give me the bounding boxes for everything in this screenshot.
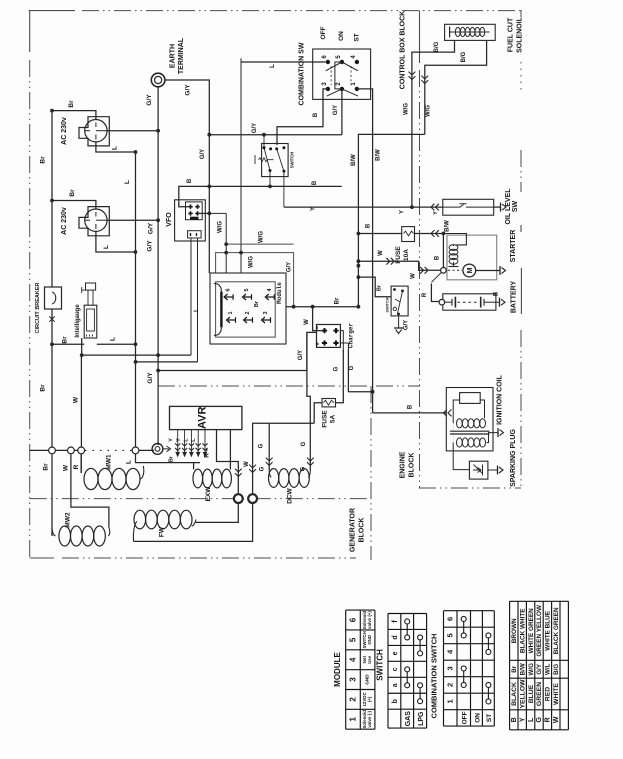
svg-text:6: 6 [349,617,358,622]
svg-text:G/Y: G/Y [404,320,410,330]
svg-text:MW1: MW1 [106,454,113,470]
svg-text:W/L: W/L [545,663,552,675]
svg-text:c: c [392,667,399,671]
svg-text:5: 5 [349,637,358,642]
svg-text:BLOCK: BLOCK [359,518,366,543]
svg-text:5: 5 [446,633,455,637]
svg-text:B/G: B/G [553,664,560,675]
svg-text:+: + [316,342,322,346]
svg-text:e: e [392,651,399,655]
svg-text:SWITCH: SWITCH [376,649,385,681]
svg-text:SWITCH: SWITCH [290,152,295,169]
svg-text:G/Y: G/Y [252,123,258,133]
svg-text:COMBINATION SWITCH: COMBINATION SWITCH [430,634,439,719]
svg-text:G: G [349,365,355,370]
svg-text:Br: Br [511,665,518,672]
svg-text:G: G [259,443,265,448]
svg-text:AC 230v: AC 230v [61,207,68,235]
svg-text:G/Y: G/Y [146,240,153,252]
svg-text:GENERATOR: GENERATOR [350,508,357,552]
svg-text:Module: Module [276,282,283,304]
svg-text:CIRCUIT BREAKER: CIRCUIT BREAKER [35,282,41,333]
svg-text:G/Y: G/Y [298,350,304,360]
svg-text:L: L [528,717,535,722]
svg-text:valve (-): valve (-) [367,710,372,727]
svg-text:Use: Use [367,655,372,664]
svg-text:d: d [392,635,399,639]
svg-text:ST: ST [486,714,493,722]
svg-text:R: R [73,464,80,469]
svg-text:B/W: B/W [351,154,357,166]
svg-text:GND: GND [364,674,369,685]
svg-text:R +: R + [205,448,211,458]
svg-text:b: b [392,699,399,703]
svg-text:EARTH: EARTH [170,44,177,68]
svg-text:YELLOW: YELLOW [519,679,526,709]
svg-text:W/G: W/G [403,103,409,115]
svg-text:MW2: MW2 [65,512,72,528]
svg-text:G: G [334,366,340,371]
svg-text:WHITE: WHITE [553,683,560,705]
svg-text:L: L [110,337,117,341]
svg-text:Intelligauge: Intelligauge [75,304,81,338]
svg-text:(+): (+) [367,696,372,702]
svg-text:−: − [316,326,322,330]
svg-text:COMBINATION SW: COMBINATION SW [299,42,306,105]
svg-text:G/Y: G/Y [146,94,153,106]
svg-text:DCW: DCW [287,487,294,503]
svg-text:B: B [435,255,441,260]
svg-text:G: G [301,466,307,471]
svg-text:Br: Br [43,463,50,471]
svg-text:Y: Y [400,210,406,214]
svg-text:R: R [545,717,552,722]
svg-text:G: G [260,466,266,471]
svg-text:B: B [511,717,518,722]
svg-text:BLACK GREEN: BLACK GREEN [553,607,560,654]
svg-text:MODULE: MODULE [333,652,342,687]
svg-text:5: 5 [244,288,250,291]
svg-text:B: B [494,291,500,296]
svg-text:SW: SW [512,200,519,212]
svg-text:B: B [366,223,372,228]
svg-text:G: G [536,717,543,723]
svg-text:W/G: W/G [426,105,432,117]
svg-text:ST: ST [354,33,361,41]
svg-text:L: L [124,180,131,184]
svg-text:1: 1 [446,699,455,703]
svg-text:W/G: W/G [528,663,535,676]
svg-text:Br: Br [40,384,47,392]
svg-text:GAS: GAS [405,711,412,727]
svg-text:3: 3 [349,677,358,682]
svg-text:G/Y: G/Y [333,105,339,115]
svg-text:FUEL CUT: FUEL CUT [508,17,515,52]
svg-text:3: 3 [446,666,455,670]
svg-text:Br: Br [62,336,69,344]
svg-text:G/Y: G/Y [148,222,155,234]
svg-text:W: W [553,716,560,723]
svg-text:Br: Br [377,284,383,291]
svg-text:SPARKING PLUG: SPARKING PLUG [510,429,517,487]
svg-text:B/G: B/G [461,51,467,62]
svg-text:G/Y: G/Y [536,663,543,675]
svg-text:L: L [194,308,200,312]
svg-text:IGNITION COIL: IGNITION COIL [497,374,504,425]
svg-text:1: 1 [228,311,234,314]
svg-text:W: W [378,250,384,256]
svg-text:CONTROL BOX BLOCK: CONTROL BOX BLOCK [400,11,407,89]
svg-text:BROWN: BROWN [511,618,518,643]
svg-text:Y: Y [176,438,182,442]
svg-text:Br: Br [169,455,175,462]
svg-text:ON: ON [474,713,481,723]
svg-text:SWITCH: SWITCH [386,297,390,312]
svg-text:3: 3 [263,311,269,314]
svg-text:G/Y: G/Y [185,84,192,96]
svg-text:B/W: B/W [376,149,382,161]
svg-text:W: W [304,319,310,325]
svg-text:valve (+): valve (+) [367,611,372,629]
svg-text:OIL LEVEL: OIL LEVEL [505,188,512,225]
svg-text:VFO: VFO [166,212,173,227]
svg-text:ON: ON [338,31,345,41]
svg-text:L: L [103,245,110,249]
svg-text:RED: RED [545,687,552,701]
svg-text:2: 2 [446,683,455,687]
svg-text:ENGINE: ENGINE [400,451,407,478]
svg-text:G/Y: G/Y [200,149,206,159]
svg-text:L: L [126,460,133,464]
svg-text:Y: Y [311,207,317,211]
svg-text:WHITE GREEN: WHITE GREEN [528,608,535,653]
svg-text:Br: Br [254,300,260,307]
svg-text:W: W [244,461,250,467]
svg-text:Y: Y [519,717,526,722]
svg-text:2: 2 [349,697,358,702]
svg-text:W/G: W/G [218,221,224,233]
svg-text:Y: Y [433,211,439,215]
svg-text:2: 2 [245,311,251,314]
svg-text:L: L [270,64,276,68]
svg-text:G/Y: G/Y [147,372,154,384]
svg-text:WHITE BLUE: WHITE BLUE [545,610,552,650]
svg-text:5A: 5A [330,415,337,424]
svg-text:OFF: OFF [462,711,469,724]
svg-text:B/W: B/W [445,220,451,232]
svg-text:6: 6 [446,617,455,621]
svg-text:B: B [313,112,319,117]
svg-text:OFF: OFF [320,26,327,39]
svg-text:BLACK: BLACK [511,682,518,706]
svg-text:a: a [392,683,399,687]
svg-text:W/G: W/G [259,231,265,243]
svg-text:SOLENOIL: SOLENOIL [517,16,524,53]
svg-text:W: W [73,396,80,403]
svg-text:BATTERY: BATTERY [511,281,518,314]
svg-text:GREEN YELLOW: GREEN YELLOW [536,604,543,657]
svg-text:B: B [407,404,413,409]
svg-text:L: L [112,146,119,150]
svg-text:W: W [411,273,417,279]
svg-text:BLOCK: BLOCK [409,453,416,478]
svg-text:Br: Br [68,100,75,108]
svg-text:Br: Br [40,156,47,164]
svg-text:Y: Y [169,438,175,442]
svg-text:BLACK WHITE: BLACK WHITE [519,608,526,653]
svg-text:FUSE: FUSE [322,410,329,428]
svg-text:M: M [467,267,474,273]
svg-text:AC 230v: AC 230v [61,117,68,145]
svg-text:B: B [312,180,318,185]
svg-text:B/G: B/G [434,41,440,52]
svg-text:FW: FW [159,526,166,537]
svg-text:1: 1 [349,717,358,722]
svg-text:EXW: EXW [205,486,212,502]
svg-text:STARTER: STARTER [510,230,517,263]
svg-text:Br: Br [335,297,341,304]
svg-text:G: G [301,441,307,446]
svg-text:LPG: LPG [418,711,425,726]
svg-text:TERMINAL: TERMINAL [178,37,185,74]
svg-text:W/G: W/G [249,256,255,268]
svg-text:B: B [187,178,193,183]
svg-text:GREEN: GREEN [536,682,543,706]
svg-text:BLUE: BLUE [528,684,535,703]
svg-text:R: R [422,292,428,297]
svg-text:6: 6 [226,288,232,291]
svg-text:Br: Br [69,189,76,197]
svg-text:4: 4 [349,657,358,662]
svg-text:AVR: AVR [197,407,209,429]
svg-text:GND: GND [367,635,372,645]
svg-text:10A: 10A [403,249,410,261]
svg-text:W: W [63,464,70,471]
svg-text:G/Y: G/Y [286,262,292,272]
svg-text:B/W: B/W [519,663,526,675]
